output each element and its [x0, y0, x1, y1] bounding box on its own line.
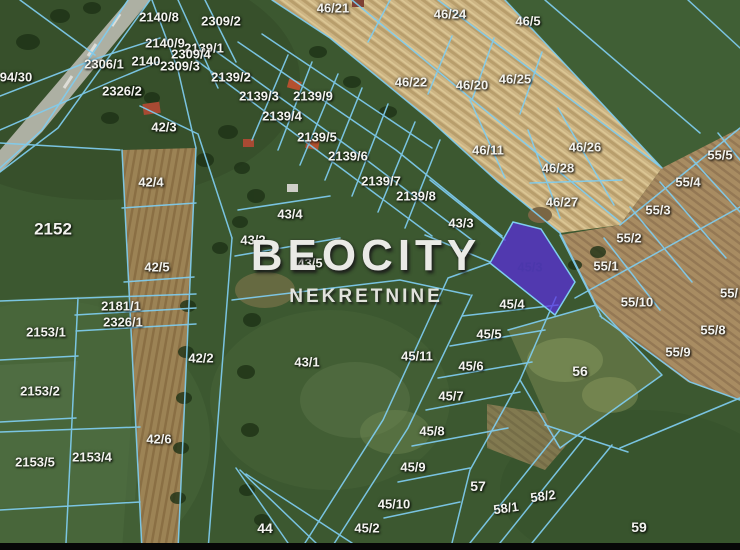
bottom-bar [0, 543, 740, 550]
terrain-regions [0, 0, 740, 550]
satellite-map [0, 0, 740, 550]
map-canvas[interactable]: 94/302140/82309/22140/92139/12309/42306/… [0, 0, 740, 550]
